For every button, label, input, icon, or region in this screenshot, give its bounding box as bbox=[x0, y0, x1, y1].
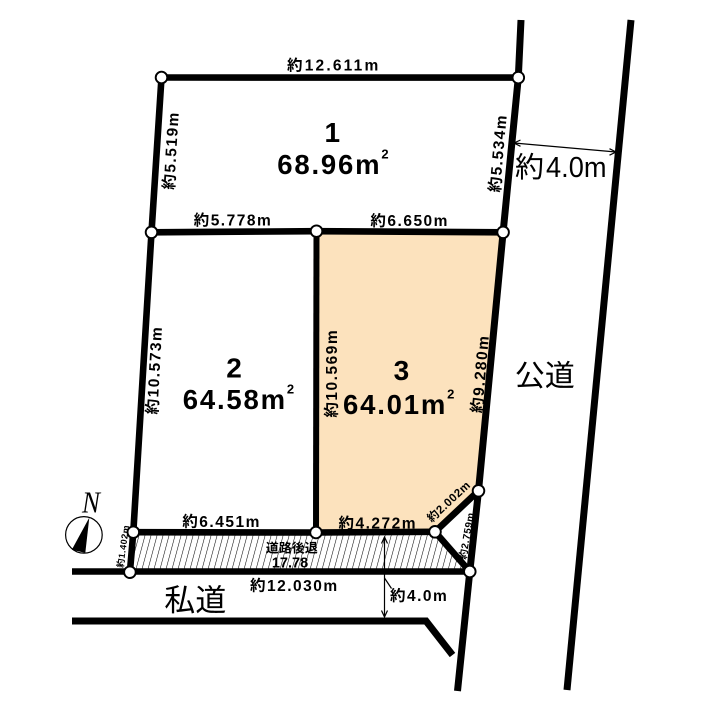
svg-text:4.0m: 4.0m bbox=[407, 588, 448, 605]
svg-text:3: 3 bbox=[394, 355, 410, 386]
svg-text:12.611m: 12.611m bbox=[305, 58, 381, 75]
svg-text:2: 2 bbox=[226, 353, 242, 384]
svg-text:4.272m: 4.272m bbox=[356, 516, 418, 533]
svg-text:N: N bbox=[81, 485, 102, 520]
svg-text:10.569m: 10.569m bbox=[324, 329, 341, 401]
svg-text:4.0m: 4.0m bbox=[546, 152, 607, 184]
svg-text:64.01m2: 64.01m2 bbox=[343, 387, 454, 421]
svg-text:64.58m2: 64.58m2 bbox=[183, 382, 294, 416]
svg-text:1: 1 bbox=[325, 117, 341, 148]
svg-text:68.96m2: 68.96m2 bbox=[277, 147, 388, 181]
svg-text:6.451m: 6.451m bbox=[199, 514, 261, 531]
svg-text:5.778m: 5.778m bbox=[211, 213, 273, 230]
svg-text:6.650m: 6.650m bbox=[387, 213, 449, 230]
svg-text:17.78: 17.78 bbox=[272, 556, 308, 572]
svg-text:12.030m: 12.030m bbox=[267, 578, 339, 595]
